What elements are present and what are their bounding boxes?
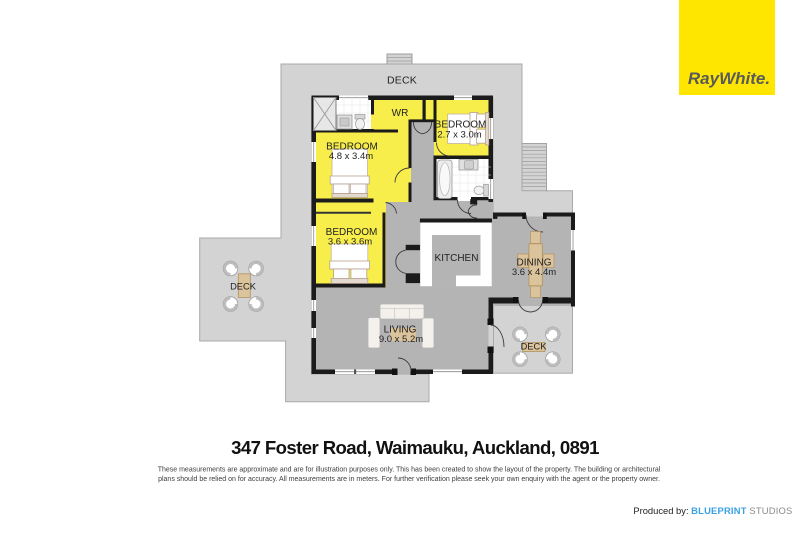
- svg-text:4.8 x 3.4m: 4.8 x 3.4m: [329, 151, 373, 162]
- svg-text:DECK: DECK: [521, 342, 548, 352]
- svg-text:2.7 x 3.0m: 2.7 x 3.0m: [437, 130, 481, 141]
- svg-text:DECK: DECK: [230, 282, 257, 292]
- svg-text:These measurements are approxi: These measurements are approximate and a…: [158, 467, 661, 474]
- svg-text:RayWhite.: RayWhite.: [688, 69, 770, 88]
- svg-text:Produced by: BLUEPRINT STUDIOS: Produced by: BLUEPRINT STUDIOS: [633, 505, 792, 516]
- svg-text:WR: WR: [392, 108, 409, 119]
- svg-text:plans should be relied on for: plans should be relied on for accuracy. …: [158, 476, 660, 483]
- svg-text:DECK: DECK: [387, 75, 417, 87]
- svg-text:3.6 x 4.4m: 3.6 x 4.4m: [512, 267, 556, 278]
- svg-text:9.0 x 5.2m: 9.0 x 5.2m: [379, 334, 423, 345]
- svg-text:3.6 x 3.6m: 3.6 x 3.6m: [328, 237, 372, 248]
- svg-text:KITCHEN: KITCHEN: [435, 253, 479, 264]
- svg-text:347 Foster Road, Waimauku, Auc: 347 Foster Road, Waimauku, Auckland, 089…: [231, 437, 599, 458]
